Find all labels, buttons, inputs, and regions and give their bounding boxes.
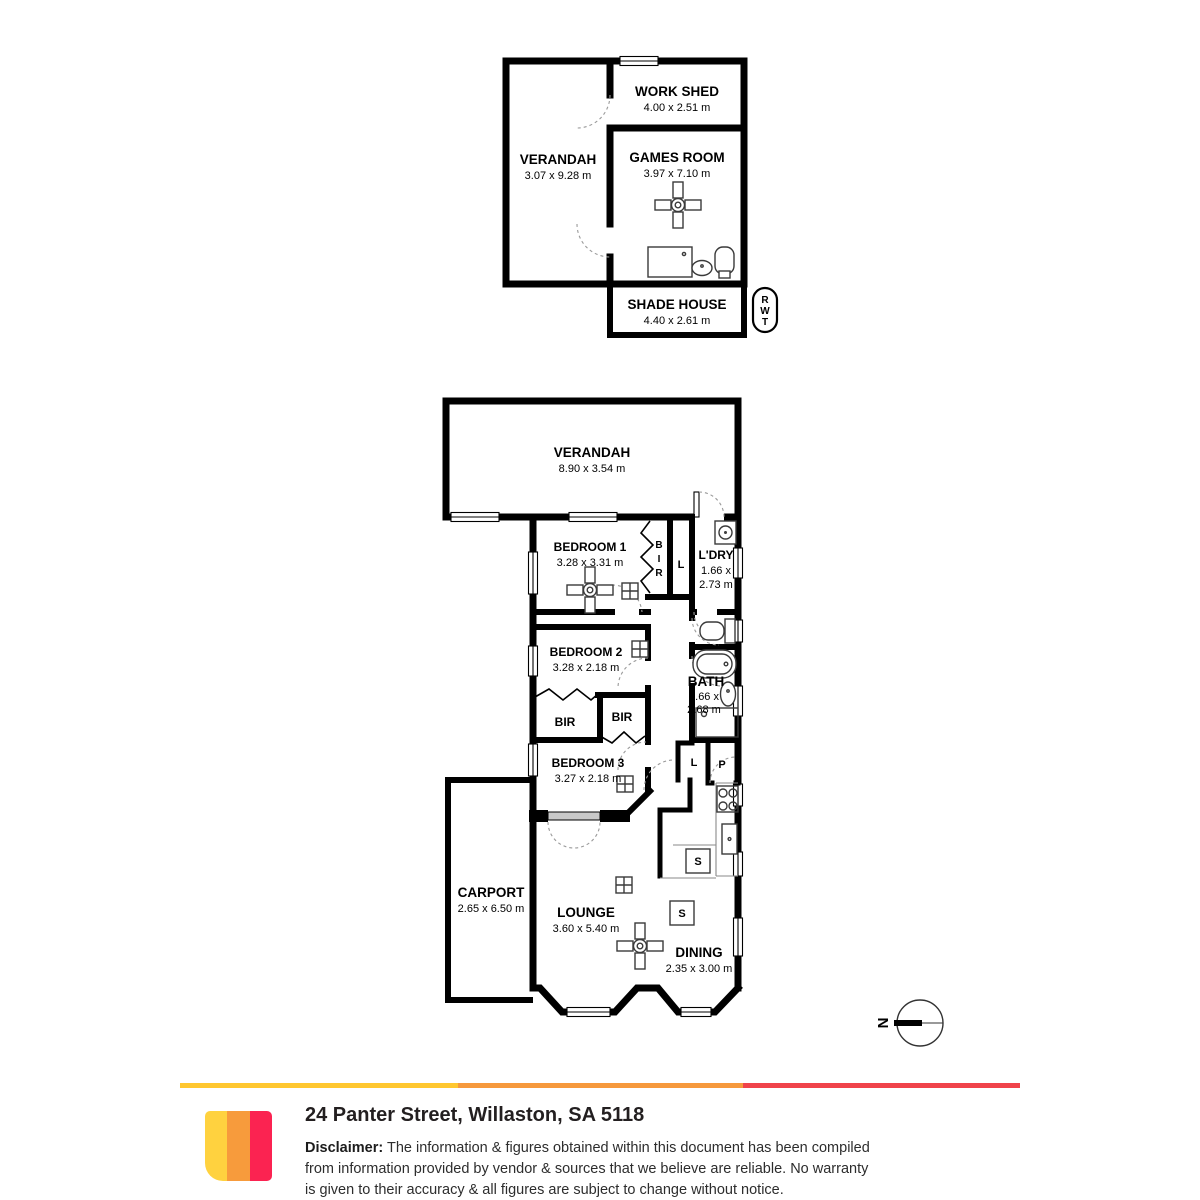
window <box>529 552 538 594</box>
room-dims-lounge: 3.60 x 5.40 m <box>553 923 620 935</box>
room-label-verandah: VERANDAH <box>554 445 631 460</box>
rwt-letter: R <box>761 295 769 306</box>
window <box>734 852 743 876</box>
sink-label: S <box>678 908 685 920</box>
door-arc <box>618 658 648 688</box>
bir-zigzag <box>600 732 645 743</box>
room-dims-bedroom1: 3.28 x 3.31 m <box>557 557 624 569</box>
closet-label-pantry: P <box>718 759 725 771</box>
rwt-letter: W <box>760 306 770 317</box>
room-dims-carport: 2.65 x 6.50 m <box>458 903 525 915</box>
room-label-shade-house: SHADE HOUSE <box>627 297 726 312</box>
logo-stripe-orange <box>227 1111 249 1181</box>
window <box>734 548 743 578</box>
property-address: 24 Panter Street, Willaston, SA 5118 <box>305 1104 644 1127</box>
room-label-carport: CARPORT <box>458 885 526 900</box>
brand-gradient-bar <box>180 1083 1020 1088</box>
room-dims-shade-house: 4.40 x 2.61 m <box>644 315 711 327</box>
room-dims-verandah: 8.90 x 3.54 m <box>559 463 626 475</box>
room-dims-bedroom3: 3.27 x 2.18 m <box>555 773 622 785</box>
room-dims-laundry: 1.66 x <box>701 565 731 577</box>
disclaimer-line: The information & figures obtained withi… <box>387 1140 870 1156</box>
room-label-bedroom1: BEDROOM 1 <box>554 540 627 554</box>
main-house: VERANDAH 8.90 x 3.54 m <box>446 401 743 1017</box>
rwt-letter: T <box>762 317 768 328</box>
room-label-lounge: LOUNGE <box>557 905 615 920</box>
vent-icon <box>616 877 632 893</box>
room-dims-games-room: 3.97 x 7.10 m <box>644 168 711 180</box>
sink-label: S <box>694 856 701 868</box>
wall-chunk <box>529 810 548 822</box>
closet-walls <box>648 517 692 597</box>
room-dims-bath: 2.68 m <box>687 704 721 716</box>
window <box>681 1008 711 1017</box>
room-dims-dining: 2.35 x 3.00 m <box>666 963 733 975</box>
outbuilding: WORK SHED 4.00 x 2.51 m GAMES ROOM 3.97 … <box>506 57 777 336</box>
logo-stripe-yellow <box>205 1111 227 1181</box>
agency-logo <box>205 1111 272 1181</box>
door-arc <box>577 95 610 128</box>
disclaimer-line: from information provided by vendor & so… <box>305 1161 868 1177</box>
bir-letter: I <box>658 554 661 565</box>
room-dims-work-shed: 4.00 x 2.51 m <box>644 102 711 114</box>
rainwater-tank-icon: R W T <box>753 288 777 332</box>
room-label-dining: DINING <box>675 945 722 960</box>
kitchen-sink-icon <box>722 824 737 854</box>
vent-icon <box>632 641 648 657</box>
room-label-verandah-top: VERANDAH <box>520 152 597 167</box>
window <box>734 918 743 956</box>
room-dims-bath: 1.66 x <box>689 691 719 703</box>
door-arc <box>548 822 600 848</box>
north-label: N <box>875 1018 892 1029</box>
room-label-games-room: GAMES ROOM <box>629 150 724 165</box>
window <box>529 744 538 776</box>
bench-icon <box>648 247 692 277</box>
door-leaf <box>694 492 699 517</box>
bir-letter: B <box>655 540 662 551</box>
toilet-icon <box>700 619 735 643</box>
logo-stripe-pink <box>250 1111 272 1181</box>
room-label-laundry: L'DRY <box>698 548 733 562</box>
closet-label-bir: BIR <box>555 715 576 729</box>
bir-zigzag <box>641 521 653 593</box>
window <box>451 513 499 522</box>
toilet-icon <box>715 247 734 278</box>
linen-pantry-walls <box>678 740 738 783</box>
diagonal-wall <box>628 791 650 813</box>
window <box>569 513 617 522</box>
door-arc <box>577 224 610 257</box>
closet-label-linen: L <box>691 757 698 769</box>
bedroom1-bedroom2-walls <box>533 612 648 627</box>
ceiling-fan-icon <box>655 182 701 228</box>
disclaimer-line: is given to their accuracy & all figures… <box>305 1182 784 1198</box>
ceiling-fan-icon <box>567 567 613 613</box>
room-label-bedroom2: BEDROOM 2 <box>550 645 623 659</box>
bir-zigzag <box>535 689 598 700</box>
window <box>529 646 538 676</box>
room-dims-laundry: 2.73 m <box>699 579 733 591</box>
ceiling-fan-icon <box>617 923 663 969</box>
disclaimer-text: Disclaimer: The information & figures ob… <box>305 1138 905 1200</box>
north-compass: N <box>875 1000 943 1046</box>
vent-icon <box>622 583 638 599</box>
floorplan-document: WORK SHED 4.00 x 2.51 m GAMES ROOM 3.97 … <box>0 0 1200 1200</box>
floorplan-drawing: WORK SHED 4.00 x 2.51 m GAMES ROOM 3.97 … <box>0 0 1200 1200</box>
basin-icon <box>692 261 712 276</box>
window <box>567 1008 610 1017</box>
laundry-tub-icon <box>715 521 736 544</box>
sliding-door-panels <box>548 812 600 820</box>
window <box>620 57 658 66</box>
closet-label-linen: L <box>678 559 685 571</box>
disclaimer-label: Disclaimer: <box>305 1140 383 1156</box>
room-label-bedroom3: BEDROOM 3 <box>552 756 625 770</box>
room-label-work-shed: WORK SHED <box>635 84 719 99</box>
closet-label-bir: BIR <box>612 710 633 724</box>
bir-letter: R <box>655 568 663 579</box>
room-label-bath: BATH <box>688 674 725 689</box>
room-dims-bedroom2: 3.28 x 2.18 m <box>553 662 620 674</box>
room-dims-verandah-top: 3.07 x 9.28 m <box>525 170 592 182</box>
